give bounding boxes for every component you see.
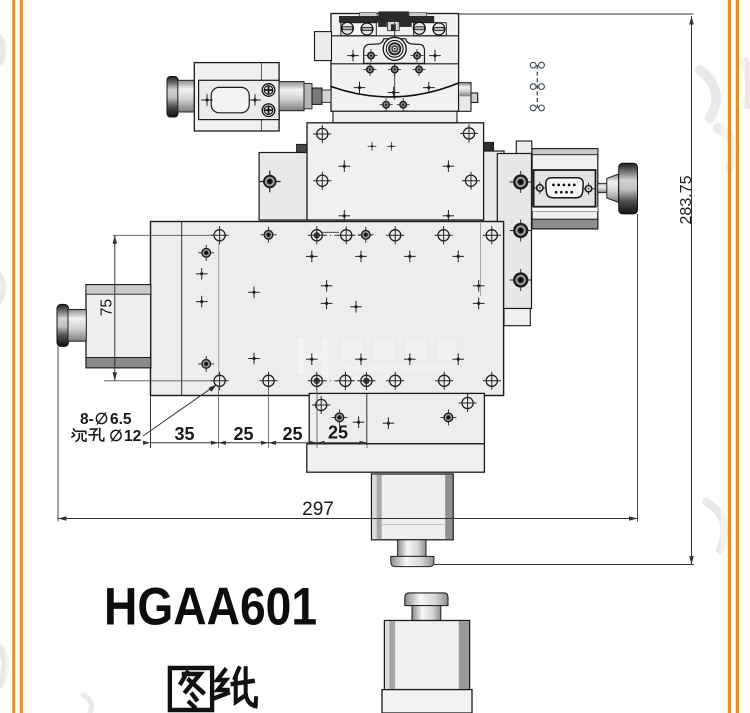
svg-text:35: 35	[174, 424, 194, 444]
svg-text:HGAA601: HGAA601	[104, 578, 317, 637]
svg-text:297: 297	[302, 499, 334, 520]
svg-text:8-: 8-	[80, 411, 94, 428]
svg-text:6.5: 6.5	[110, 411, 132, 428]
svg-text:283.75: 283.75	[678, 175, 695, 224]
svg-text:25: 25	[328, 423, 348, 443]
svg-text:25: 25	[282, 424, 302, 444]
svg-text:12: 12	[124, 428, 141, 445]
svg-text:75: 75	[99, 299, 116, 316]
svg-text:25: 25	[233, 424, 253, 444]
